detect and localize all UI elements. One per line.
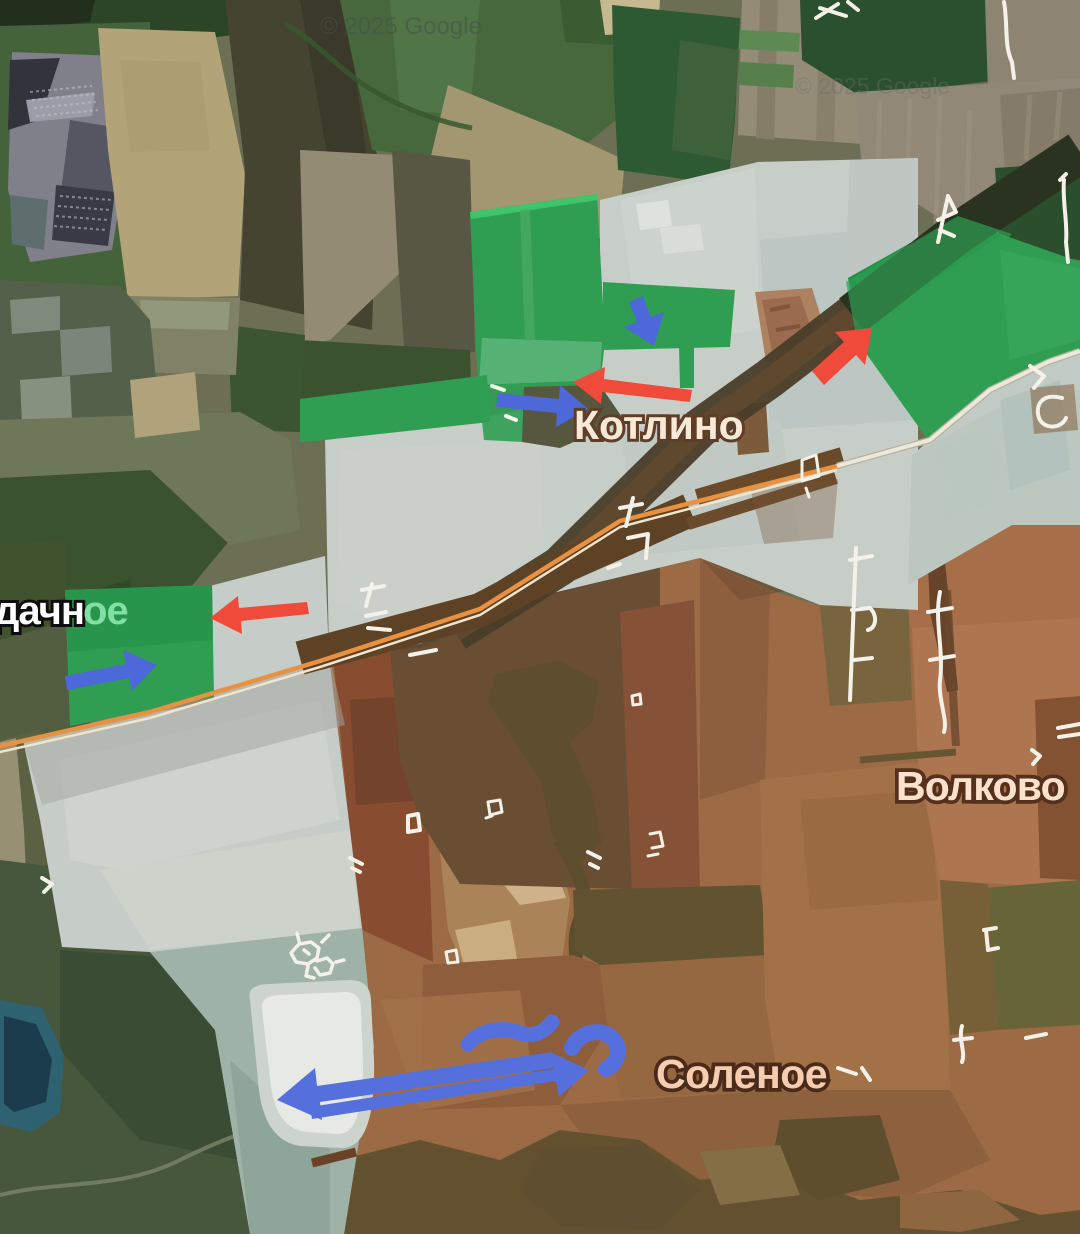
svg-text:© 2025 Google: © 2025 Google [320,13,482,40]
svg-text:Соленое: Соленое [656,1051,827,1097]
svg-text:Котлино: Котлино [574,402,744,448]
svg-text:дачное: дачное [0,589,128,633]
svg-text:Волково: Волково [896,763,1065,809]
svg-text:© 2025 Google: © 2025 Google [795,73,950,99]
